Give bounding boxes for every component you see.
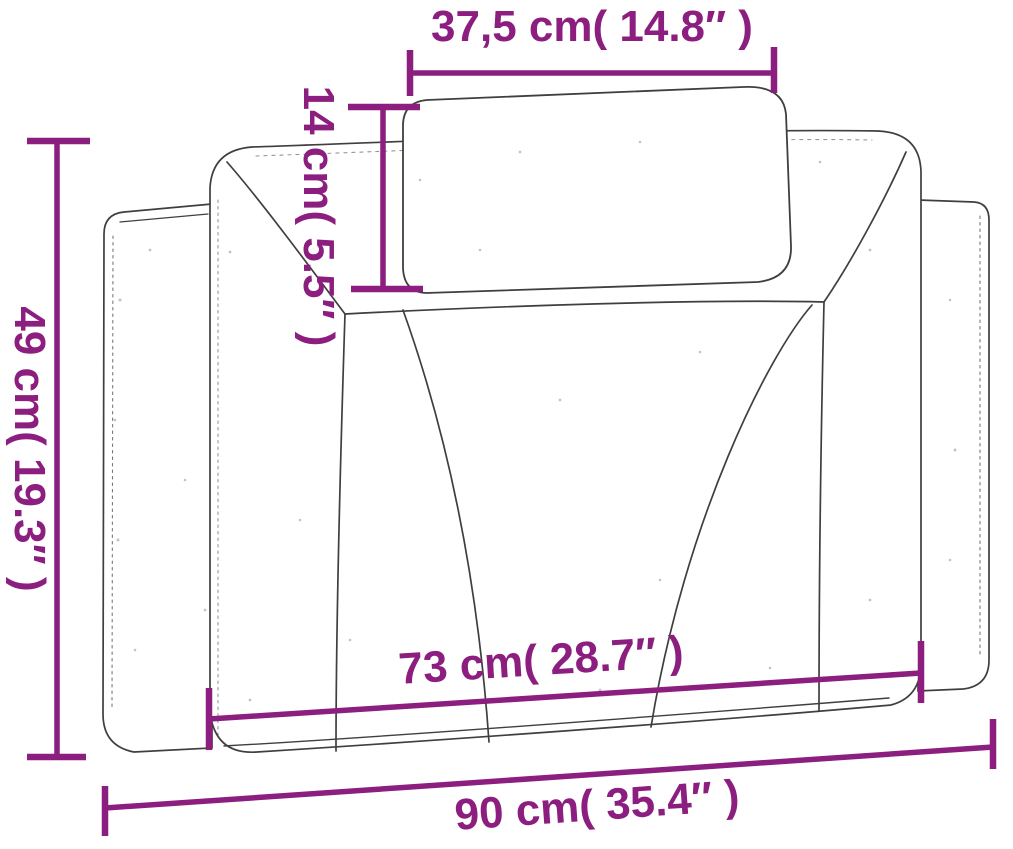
dimension-label-top-width: 37,5 cm( 14.8″ ) bbox=[431, 2, 753, 52]
pillow-outline bbox=[403, 87, 791, 293]
dimension-label-pillow-height: 14 cm( 5.5″ ) bbox=[293, 86, 343, 347]
dimension-label-overall-height: 49 cm( 19.3″ ) bbox=[4, 306, 54, 591]
back-panel-left-outline bbox=[103, 204, 212, 752]
product-dimension-diagram: 37,5 cm( 14.8″ ) 14 cm( 5.5″ ) 49 cm( 19… bbox=[0, 0, 1013, 849]
back-panel-right-outline bbox=[918, 200, 989, 691]
headboard-sketch-canvas bbox=[0, 0, 1013, 849]
